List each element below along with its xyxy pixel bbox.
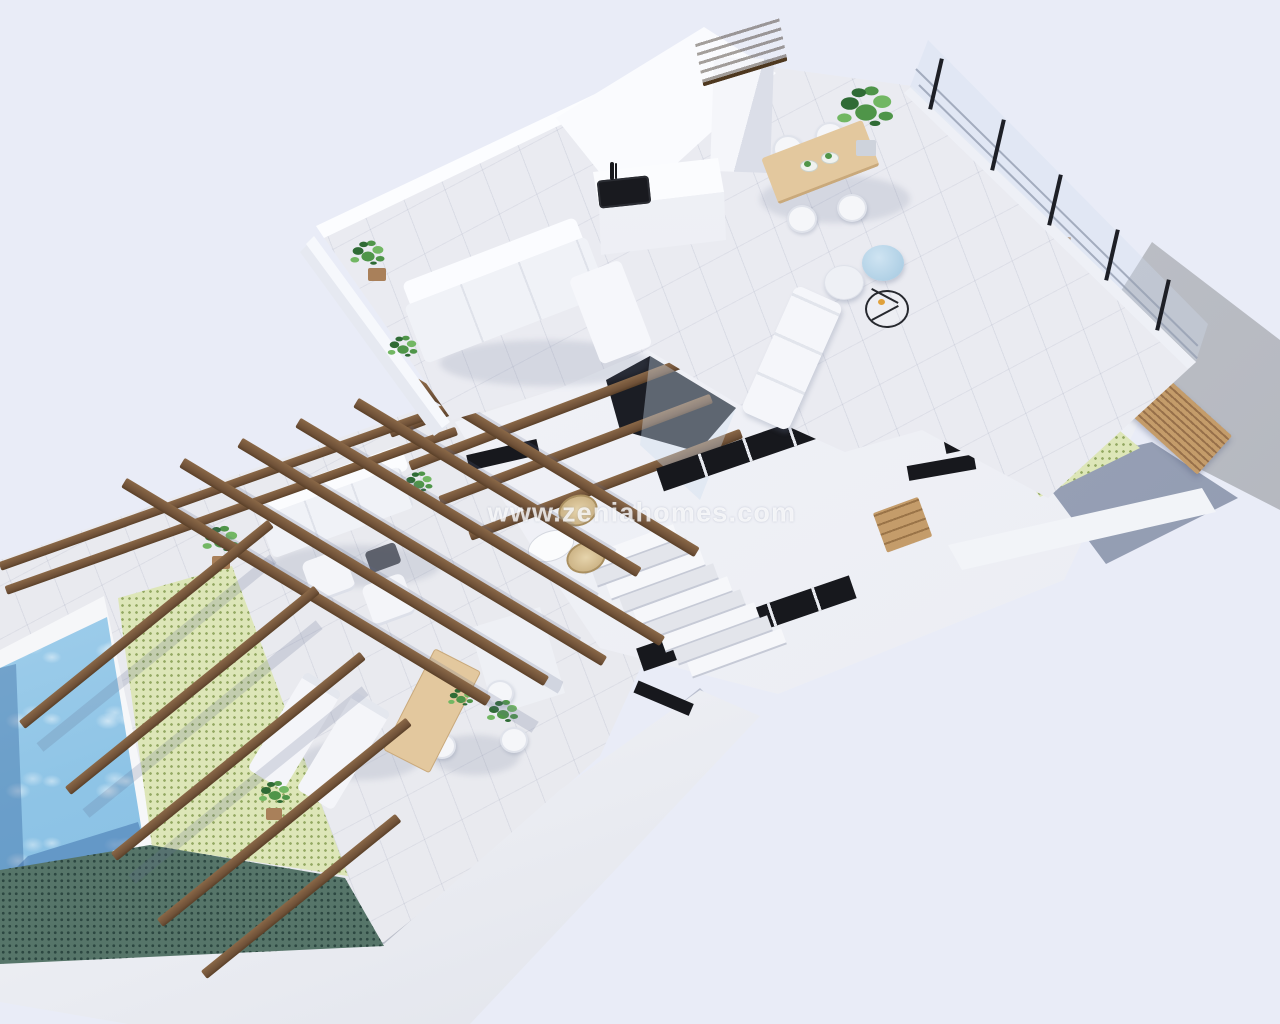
floorplan-render: www.zeniahomes.com bbox=[0, 0, 1280, 1024]
plant-pot bbox=[856, 140, 876, 156]
plate-greens bbox=[804, 161, 811, 167]
fruit-bowl bbox=[878, 299, 885, 305]
kitchen-faucet bbox=[610, 162, 614, 180]
roof-tall-plant bbox=[855, 104, 877, 120]
parapet-plant bbox=[361, 252, 374, 262]
watermark: www.zeniahomes.com bbox=[488, 498, 797, 529]
white-pouf bbox=[824, 265, 864, 300]
plate-greens bbox=[825, 153, 832, 159]
plant-pot bbox=[368, 268, 386, 281]
skylight-slot bbox=[633, 681, 693, 716]
parapet-plant bbox=[397, 345, 408, 354]
roof-dining-chair bbox=[787, 205, 817, 233]
kitchen-sink bbox=[597, 175, 652, 208]
roof-dining-chair bbox=[837, 194, 867, 222]
blue-pouf bbox=[862, 245, 904, 281]
